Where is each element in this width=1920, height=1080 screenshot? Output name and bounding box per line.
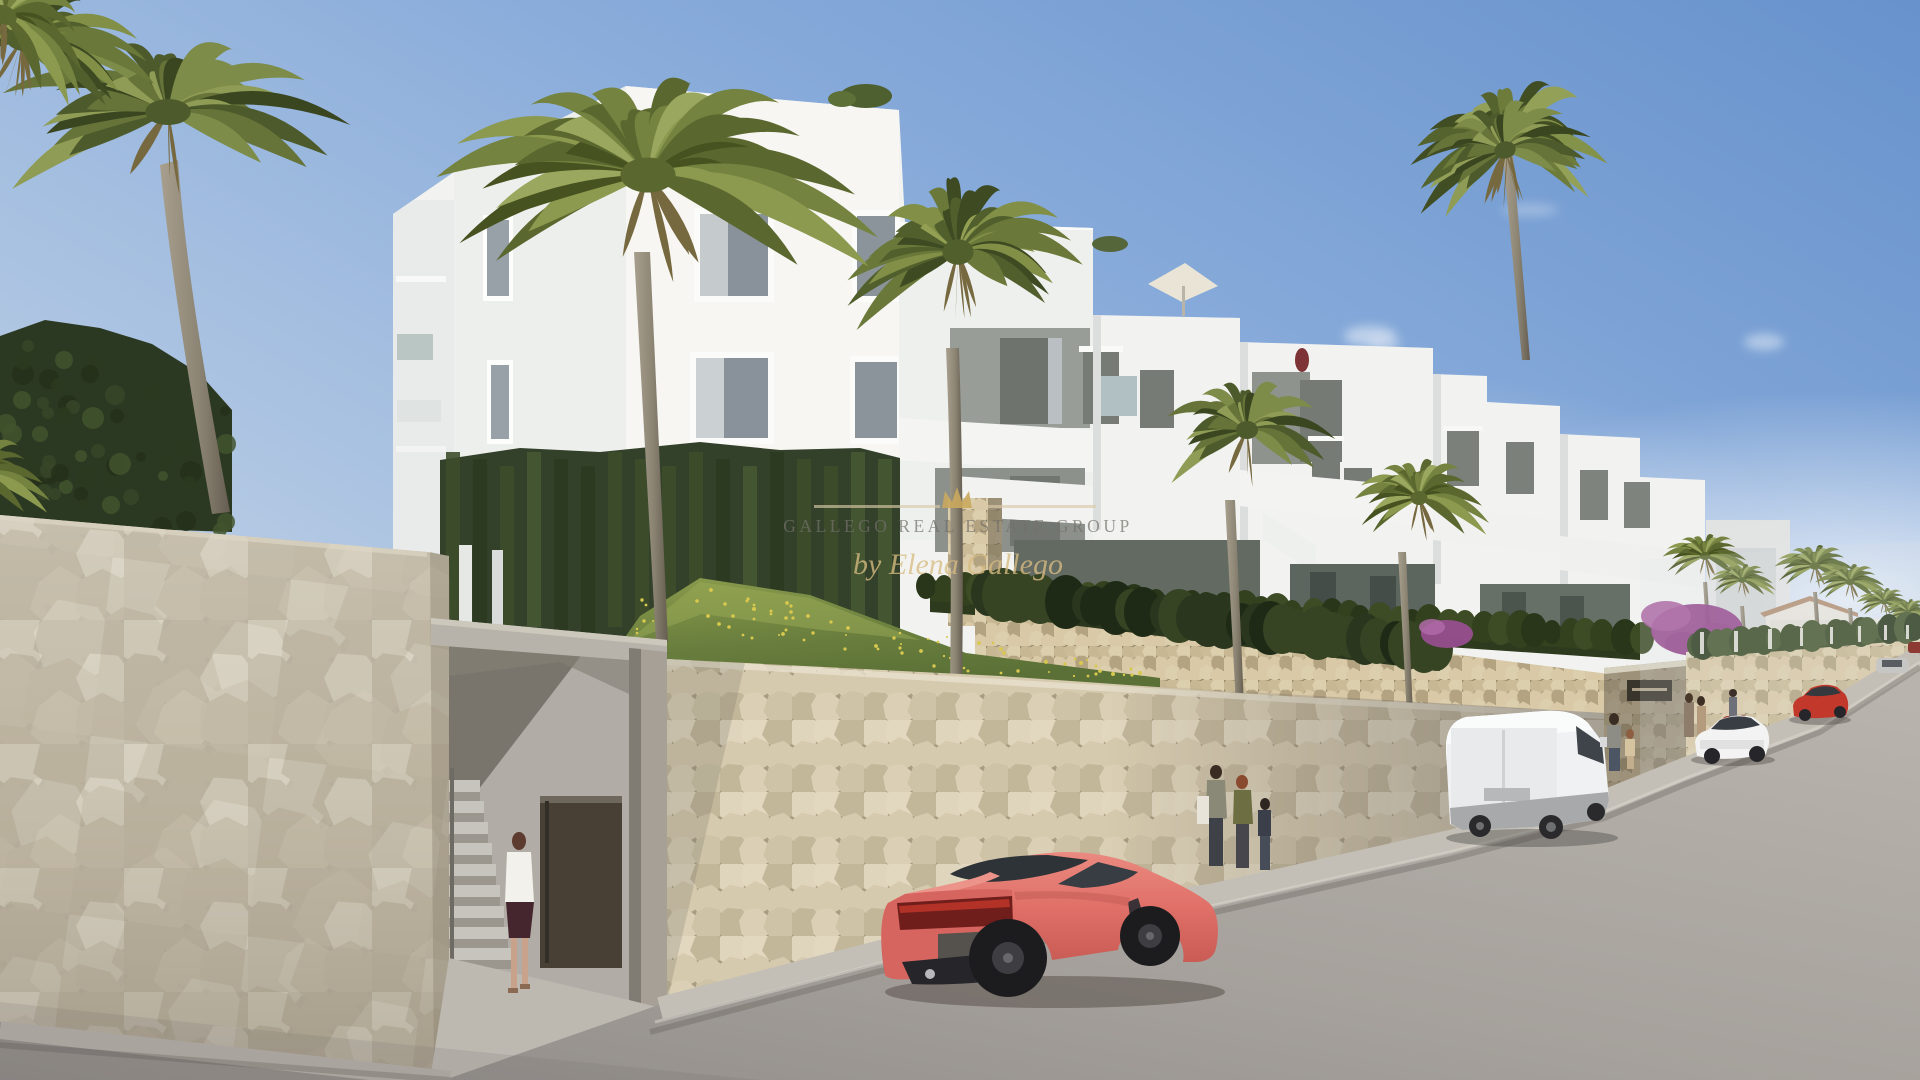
svg-text:GALLEGO REAL ESTATE GROUP: GALLEGO REAL ESTATE GROUP bbox=[783, 516, 1132, 536]
svg-text:by Elena Gallego: by Elena Gallego bbox=[853, 548, 1063, 581]
